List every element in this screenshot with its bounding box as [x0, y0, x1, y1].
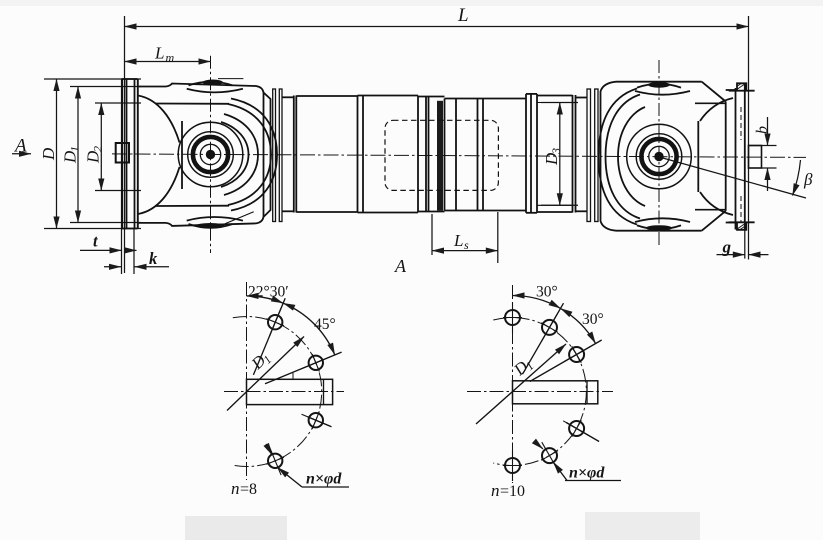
- svg-text:k: k: [149, 249, 158, 268]
- svg-text:A: A: [394, 256, 407, 276]
- svg-text:=10: =10: [500, 483, 525, 500]
- svg-text:D: D: [39, 147, 58, 161]
- svg-text:3: 3: [549, 148, 563, 155]
- svg-text:n×φd: n×φd: [569, 465, 605, 482]
- svg-text:=8: =8: [240, 481, 257, 498]
- svg-text:L: L: [154, 44, 164, 63]
- svg-text:L: L: [457, 5, 469, 26]
- svg-text:22°30′: 22°30′: [248, 284, 289, 301]
- svg-text:1: 1: [68, 146, 82, 152]
- svg-text:n: n: [491, 481, 500, 500]
- svg-text:m: m: [166, 51, 175, 65]
- svg-text:30°: 30°: [582, 311, 604, 328]
- svg-text:n: n: [231, 479, 240, 498]
- svg-text:30°: 30°: [536, 284, 558, 301]
- svg-text:A: A: [13, 136, 27, 157]
- svg-text:g: g: [722, 238, 732, 257]
- svg-text:L: L: [453, 231, 463, 250]
- svg-text:s: s: [464, 238, 469, 252]
- svg-text:45°: 45°: [314, 316, 336, 333]
- svg-text:b: b: [754, 126, 771, 134]
- svg-text:t: t: [93, 232, 98, 251]
- svg-text:n×φd: n×φd: [306, 471, 342, 488]
- svg-text:2: 2: [91, 146, 105, 152]
- svg-text:β: β: [803, 170, 813, 189]
